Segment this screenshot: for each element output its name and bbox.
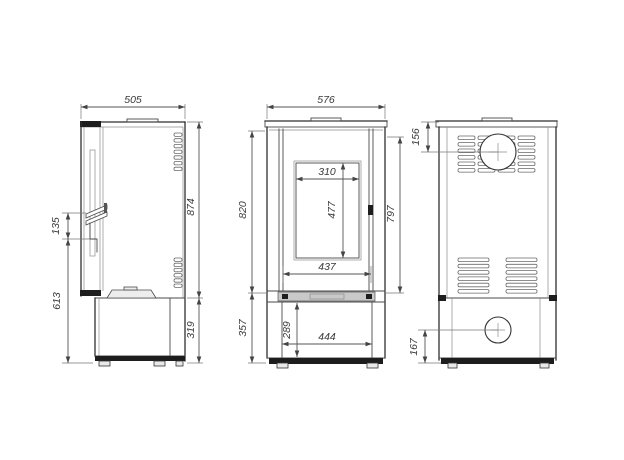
back-view: 156 167 — [408, 118, 557, 368]
side-view: 505 874 319 613 135 — [50, 94, 203, 366]
dim-label-base-opening-height: 289 — [281, 321, 293, 340]
side-top-notch — [127, 119, 158, 122]
foot — [540, 363, 549, 368]
back-base — [438, 295, 557, 368]
dim-side-body-height: 874 — [185, 122, 203, 298]
side-body — [80, 119, 185, 361]
back-top-notch — [482, 118, 512, 121]
foot — [448, 363, 457, 368]
foot — [176, 361, 183, 366]
dim-label-front-body-height: 820 — [237, 201, 249, 219]
dim-label-door-height: 797 — [385, 204, 397, 223]
dim-label-door-width: 437 — [318, 261, 337, 273]
dim-door-width: 437 — [283, 261, 371, 283]
dim-door-height: 797 — [385, 137, 404, 293]
dim-handle-height: 613 — [51, 239, 93, 363]
front-top-notch — [311, 118, 341, 121]
dim-label-handle-span: 135 — [50, 217, 62, 235]
foot — [367, 363, 378, 368]
base-top-lid — [107, 290, 156, 298]
front-shelf-band — [267, 292, 385, 302]
dim-label-glass-height: 477 — [326, 200, 338, 219]
dim-base-opening-width: 444 — [282, 331, 372, 344]
dim-label-side-body-height: 874 — [185, 198, 197, 216]
dim-side-base-height: 319 — [185, 298, 203, 363]
dim-label-front-base-height: 357 — [237, 318, 249, 337]
side-base — [95, 287, 185, 366]
front-view: 576 820 357 797 310 477 437 — [237, 94, 404, 368]
door-handle — [86, 203, 107, 252]
dim-base-opening-height: 289 — [281, 303, 297, 357]
dim-label-glass-width: 310 — [318, 166, 336, 178]
side-rear-vents — [174, 133, 182, 287]
dim-label-handle-height: 613 — [51, 292, 63, 310]
dim-label-inlet-offset: 167 — [408, 337, 420, 356]
dim-label-base-opening-width: 444 — [318, 331, 336, 343]
dim-label-front-width: 576 — [317, 94, 335, 106]
dim-label-flue-offset: 156 — [410, 128, 422, 146]
dim-front-body-height: 820 — [237, 131, 266, 293]
dim-side-depth: 505 — [81, 94, 185, 119]
back-mid-vents — [458, 258, 537, 293]
dim-label-side-depth: 505 — [124, 94, 142, 106]
dim-label-side-base-height: 319 — [185, 321, 197, 339]
foot — [154, 361, 165, 366]
door-latch — [368, 205, 373, 215]
stove-dimension-drawing: 505 874 319 613 135 — [0, 0, 624, 460]
side-glass-edge — [90, 150, 95, 256]
dim-front-base-height: 357 — [237, 293, 266, 363]
drawing-page: 505 874 319 613 135 — [0, 0, 624, 460]
dim-glass-width: 310 — [296, 166, 359, 179]
dim-front-width: 576 — [267, 94, 385, 119]
foot — [99, 361, 110, 366]
foot — [277, 363, 288, 368]
